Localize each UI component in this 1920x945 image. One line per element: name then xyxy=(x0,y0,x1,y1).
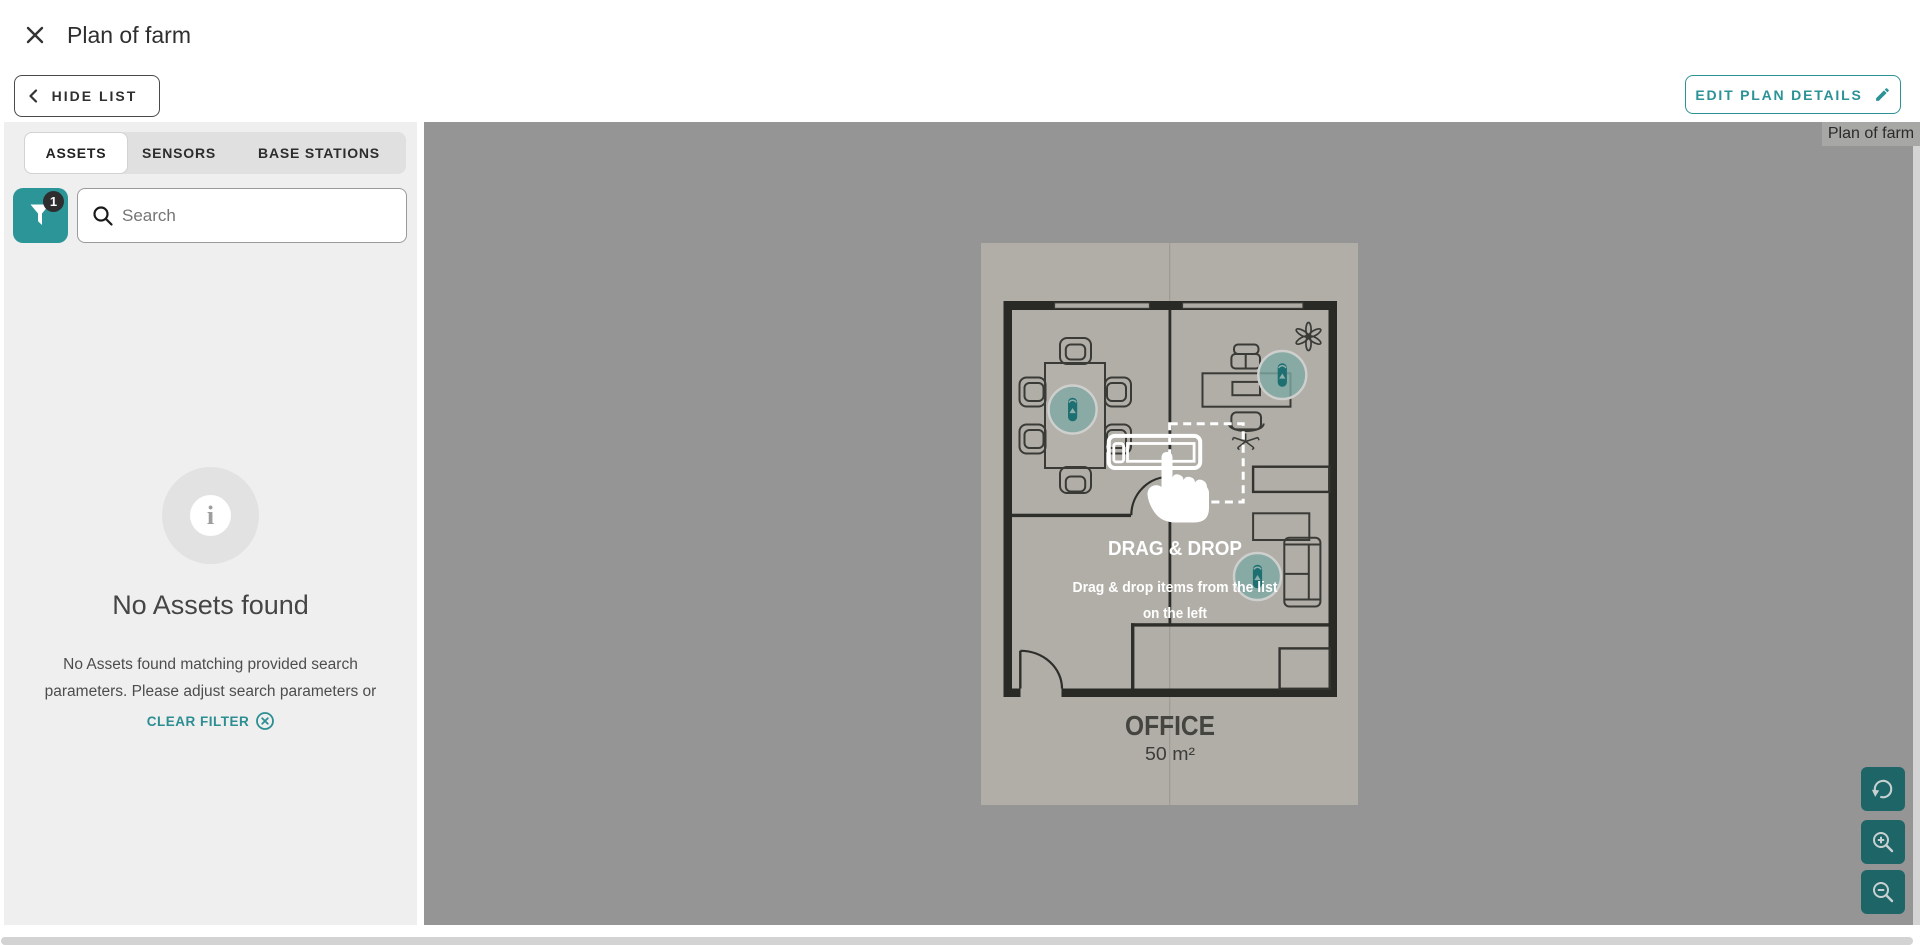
svg-text:on the left: on the left xyxy=(1143,605,1207,622)
svg-text:Drag & drop items from the lis: Drag & drop items from the list xyxy=(1073,579,1278,596)
svg-text:OFFICE: OFFICE xyxy=(1125,710,1215,741)
svg-text:DRAG & DROP: DRAG & DROP xyxy=(1108,538,1242,560)
svg-text:50 m²: 50 m² xyxy=(1145,744,1195,764)
